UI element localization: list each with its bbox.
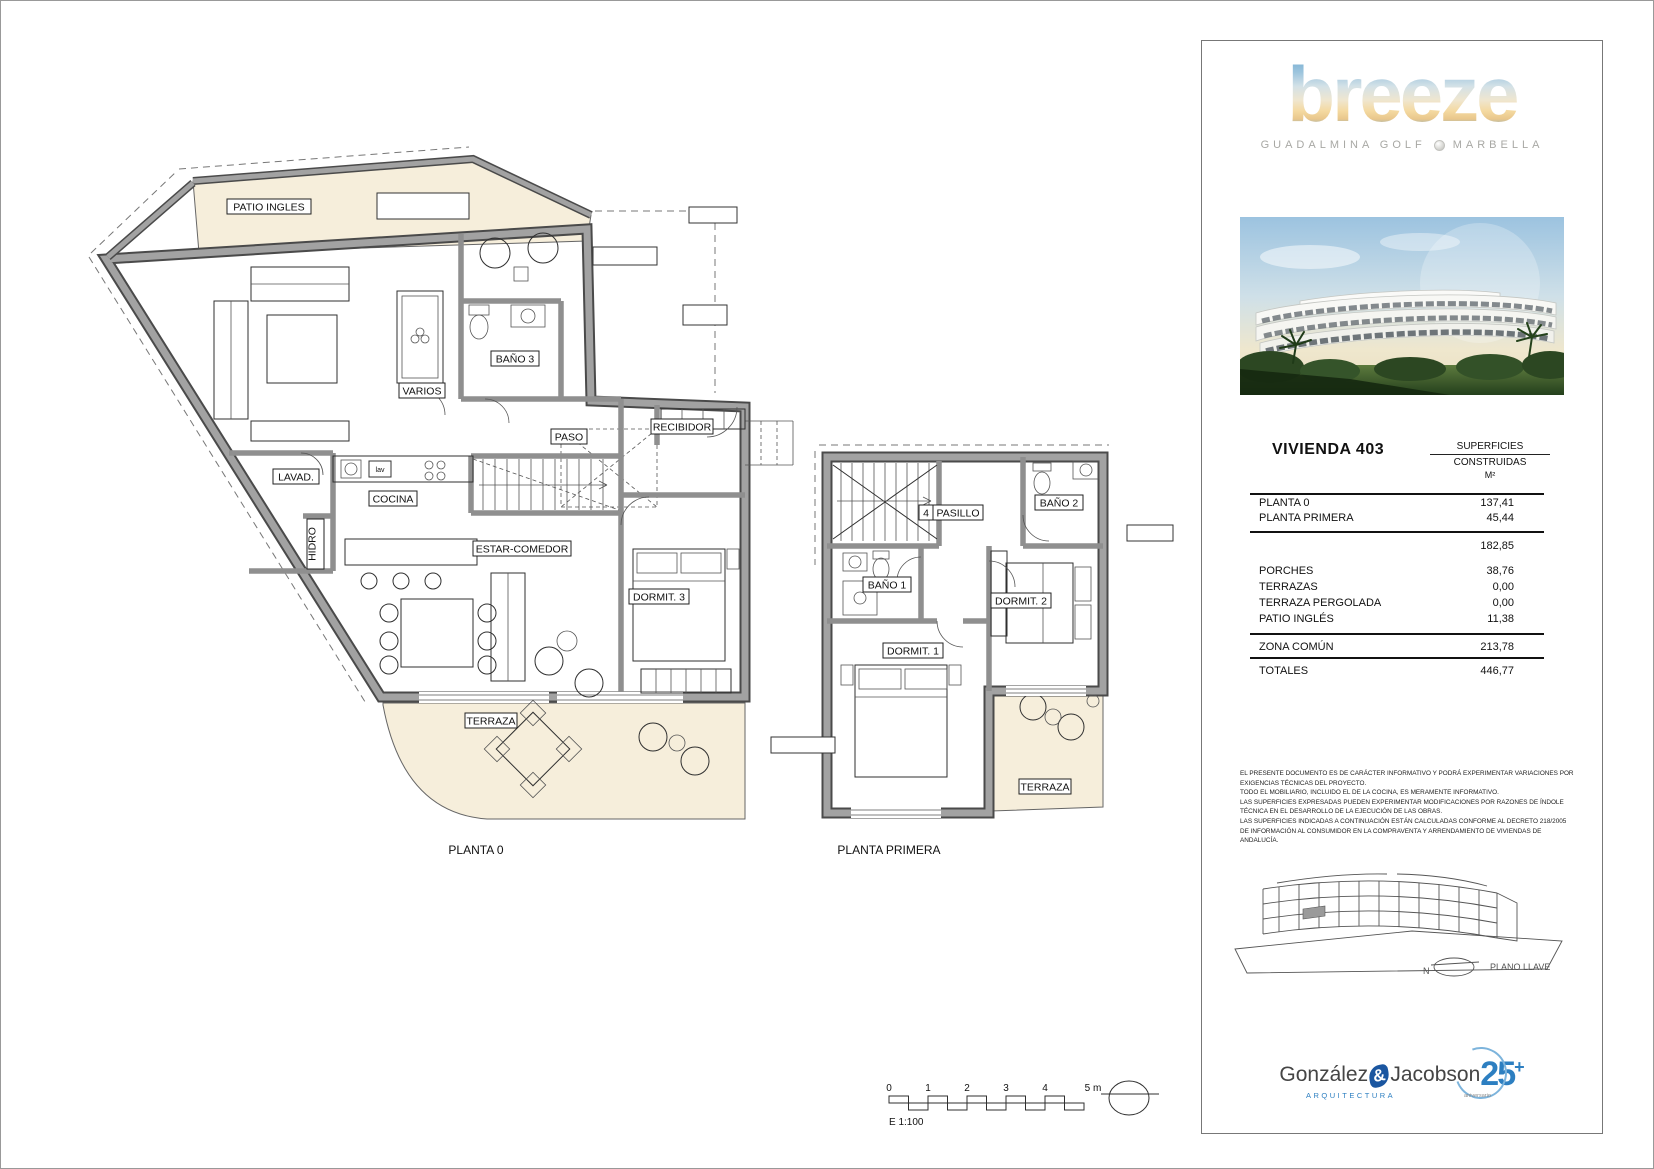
annotation-box — [689, 207, 737, 223]
table-row: PORCHES 38,76 — [1259, 565, 1514, 577]
planta1-partitions — [827, 457, 1103, 691]
legal-line: LAS SUPERFICIES EXPRESADAS PUEDEN EXPERI… — [1240, 798, 1574, 817]
room-label-recibidor: RECIBIDOR — [651, 419, 713, 434]
table-rule — [1250, 657, 1544, 659]
scale-label: E 1:100 — [889, 1117, 924, 1128]
svg-text:VARIOS: VARIOS — [403, 386, 442, 398]
svg-text:TERRAZA: TERRAZA — [466, 716, 515, 728]
key-plan-sketch — [1235, 874, 1562, 973]
annotation-box — [593, 247, 657, 265]
room-label-patio-ingles: PATIO INGLES — [227, 199, 311, 214]
room-label-pasillo: 4 PASILLO — [919, 505, 983, 520]
anniversary-label: aniversario — [1464, 1093, 1491, 1099]
plan-sheet: lav — [0, 0, 1654, 1169]
svg-text:LAVAD.: LAVAD. — [278, 472, 314, 484]
ampersand-icon: & — [1367, 1063, 1391, 1088]
room-label-dormit1: DORMIT. 1 — [883, 643, 943, 658]
planta1-stairs — [833, 463, 937, 541]
zona-comun-row: ZONA COMÚN 213,78 — [1259, 641, 1514, 653]
brand-subtitle-right: MARBELLA — [1453, 139, 1544, 151]
table-rule — [1250, 531, 1544, 533]
row-label: PLANTA PRIMERA — [1259, 512, 1354, 524]
brand-subtitle-left: GUADALMINA GOLF — [1261, 139, 1426, 151]
terraza-zone — [383, 703, 745, 819]
legal-line: TODO EL MOBILIARIO, INCLUIDO EL DE LA CO… — [1240, 788, 1574, 798]
svg-text:COCINA: COCINA — [373, 494, 414, 506]
room-label-estar-comedor: ESTAR-COMEDOR — [473, 541, 571, 556]
architect-name-first: González — [1279, 1063, 1368, 1086]
surfaces-column-header: SUPERFICIES CONSTRUIDAS M² — [1430, 441, 1550, 480]
svg-text:DORMIT. 3: DORMIT. 3 — [633, 592, 685, 604]
planta0-plan: lav — [89, 147, 793, 857]
svg-text:5 m: 5 m — [1085, 1083, 1102, 1094]
svg-text:BAÑO 1: BAÑO 1 — [868, 579, 907, 592]
room-label-dormit2: DORMIT. 2 — [991, 593, 1051, 608]
legal-line: EL PRESENTE DOCUMENTO ES DE CARÁCTER INF… — [1240, 769, 1574, 788]
planta0-partitions — [229, 234, 745, 697]
room-label-lavadero: LAVAD. — [273, 469, 319, 484]
svg-text:4: 4 — [1042, 1083, 1048, 1094]
table-rule — [1250, 493, 1544, 495]
brand-block: breeze GUADALMINA GOLF MARBELLA — [1202, 55, 1602, 151]
table-row: PLANTA 0 137,41 — [1259, 497, 1514, 509]
row-value: 0,00 — [1493, 581, 1514, 593]
north-label: N — [1423, 966, 1430, 976]
annotation-box — [683, 305, 727, 325]
room-label-terraza-p1: TERRAZA — [1019, 779, 1071, 794]
svg-text:HIDRO: HIDRO — [307, 527, 319, 561]
key-plan-label: PLANO LLAVE — [1490, 962, 1550, 972]
row-value: 446,77 — [1480, 665, 1514, 677]
svg-text:ESTAR-COMEDOR: ESTAR-COMEDOR — [476, 544, 569, 556]
anniversary-plus: + — [1514, 1057, 1525, 1077]
entry-landing — [745, 421, 793, 465]
svg-text:4: 4 — [923, 508, 929, 520]
svg-text:DORMIT. 2: DORMIT. 2 — [995, 596, 1047, 608]
svg-text:PASO: PASO — [555, 432, 583, 444]
golf-ball-icon — [1434, 140, 1445, 151]
svg-text:TERRAZA: TERRAZA — [1020, 782, 1069, 794]
svg-text:0: 0 — [886, 1083, 892, 1094]
row-label: TOTALES — [1259, 665, 1308, 677]
row-label: PLANTA 0 — [1259, 497, 1310, 509]
room-label-bano2: BAÑO 2 — [1035, 495, 1083, 510]
row-value: 137,41 — [1480, 497, 1514, 509]
row-label: PATIO INGLÉS — [1259, 613, 1334, 625]
svg-text:BAÑO 3: BAÑO 3 — [496, 353, 535, 366]
orientation-symbol — [1101, 1081, 1159, 1115]
col-header-m2: M² — [1430, 468, 1550, 480]
svg-text:RECIBIDOR: RECIBIDOR — [653, 422, 712, 434]
room-label-bano1: BAÑO 1 — [863, 577, 911, 592]
key-plan: N PLANO LLAVE — [1217, 841, 1587, 1006]
table-row: PATIO INGLÉS 11,38 — [1259, 613, 1514, 625]
col-header-superficies: SUPERFICIES — [1430, 441, 1550, 455]
col-header-construidas: CONSTRUIDAS — [1430, 455, 1550, 468]
row-label: ZONA COMÚN — [1259, 641, 1334, 653]
room-label-cocina: COCINA — [369, 491, 417, 506]
planta1-plan: 4 PASILLO BAÑO 2 BAÑO 1 DORMIT. 2 DORMIT… — [815, 445, 1109, 857]
row-label: PORCHES — [1259, 565, 1313, 577]
table-rule — [1250, 633, 1544, 635]
row-label: TERRAZAS — [1259, 581, 1318, 593]
patio-window — [377, 193, 469, 219]
room-label-paso: PASO — [551, 429, 587, 444]
svg-text:1: 1 — [925, 1083, 931, 1094]
unit-title: VIVIENDA 403 — [1272, 441, 1384, 459]
row-value: 213,78 — [1480, 641, 1514, 653]
totales-row: TOTALES 446,77 — [1259, 665, 1514, 677]
row-value: 45,44 — [1486, 512, 1514, 524]
annotation-box — [771, 737, 835, 753]
svg-text:2: 2 — [964, 1083, 970, 1094]
brand-subtitle: GUADALMINA GOLF MARBELLA — [1202, 139, 1602, 151]
svg-text:BAÑO 2: BAÑO 2 — [1040, 497, 1079, 510]
planta0-caption: PLANTA 0 — [448, 843, 503, 857]
architect-logo: González&Jacobson25+ — [1202, 1055, 1602, 1094]
room-label-bano3: BAÑO 3 — [491, 351, 539, 366]
table-row: TERRAZAS 0,00 — [1259, 581, 1514, 593]
room-label-terraza-p0: TERRAZA — [465, 713, 517, 728]
row-value: 38,76 — [1486, 565, 1514, 577]
annotation-boxes — [593, 207, 1173, 753]
legal-disclaimer: EL PRESENTE DOCUMENTO ES DE CARÁCTER INF… — [1240, 769, 1574, 846]
svg-text:PATIO INGLES: PATIO INGLES — [233, 202, 304, 214]
row-value: 11,38 — [1487, 613, 1514, 625]
planta1-caption: PLANTA PRIMERA — [837, 843, 940, 857]
table-row: PLANTA PRIMERA 45,44 — [1259, 512, 1514, 524]
building-photo — [1240, 217, 1564, 395]
north-indicator: N — [1423, 958, 1479, 976]
architect-field: ARQUITECTURA — [1306, 1091, 1395, 1100]
room-label-hidro: HIDRO — [307, 519, 325, 569]
building-photo-art — [1240, 217, 1564, 395]
svg-text:DORMIT. 1: DORMIT. 1 — [887, 646, 939, 658]
svg-text:PASILLO: PASILLO — [937, 508, 980, 520]
room-label-dormit3: DORMIT. 3 — [629, 589, 689, 604]
subtotal-row: 182,85 — [1259, 540, 1514, 552]
row-label: TERRAZA PERGOLADA — [1259, 597, 1381, 609]
info-panel: breeze GUADALMINA GOLF MARBELLA — [1201, 40, 1603, 1134]
row-value: 0,00 — [1493, 597, 1514, 609]
scale-bar: 0 1 2 3 4 5 m E 1:100 — [886, 1081, 1159, 1128]
planta0-stairs — [473, 459, 619, 510]
scale-bar-segments — [889, 1096, 1084, 1110]
svg-text:lav: lav — [376, 467, 385, 474]
breeze-logo: breeze — [1202, 55, 1602, 133]
table-row: TERRAZA PERGOLADA 0,00 — [1259, 597, 1514, 609]
annotation-box — [1127, 525, 1173, 541]
highlighted-unit — [1303, 906, 1325, 919]
svg-text:3: 3 — [1003, 1083, 1009, 1094]
room-label-varios: VARIOS — [399, 383, 445, 398]
